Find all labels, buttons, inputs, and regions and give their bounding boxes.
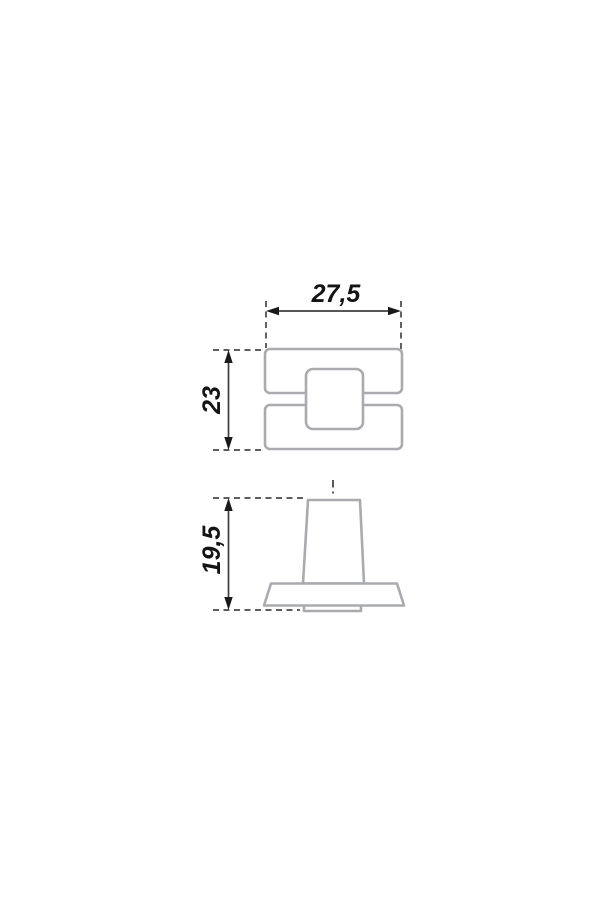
top-view-part [265,349,402,449]
width-dimension-label: 27,5 [311,280,362,308]
drawing-canvas: 27,5 23 [0,0,600,900]
side-view-stem [303,500,364,584]
side-view-part [264,500,404,611]
arrow-right-icon [388,307,401,315]
arrow-left-icon [266,307,279,315]
arrow-down-icon [224,437,232,450]
arrow-up-icon [224,350,232,363]
width-dimension: 27,5 [266,280,401,349]
top-height-dimension-label: 23 [198,386,226,415]
top-view: 27,5 23 [198,280,402,450]
side-view-flared-base [264,584,404,606]
technical-drawing: 27,5 23 [0,0,600,900]
top-view-center-boss [306,369,363,429]
arrow-up-icon [224,498,232,511]
arrow-down-icon [224,597,232,610]
top-height-dimension: 23 [198,350,263,450]
side-view: 19,5 [198,480,404,611]
side-height-dimension-label: 19,5 [198,525,226,575]
